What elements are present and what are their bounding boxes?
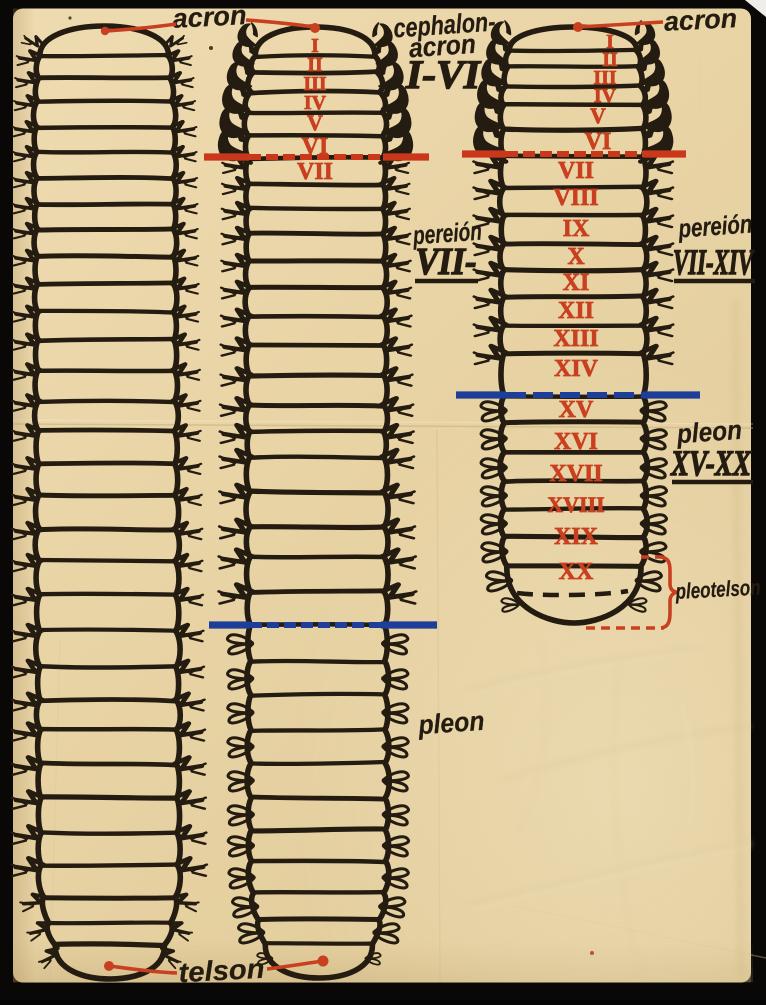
svg-text:VI: VI xyxy=(302,134,329,160)
svg-text:VII: VII xyxy=(297,159,333,185)
svg-text:XII: XII xyxy=(558,298,594,324)
svg-text:VII-XIV: VII-XIV xyxy=(673,242,755,282)
svg-text:XV-XX: XV-XX xyxy=(670,443,751,483)
svg-text:X: X xyxy=(567,244,585,270)
svg-text:V: V xyxy=(307,110,323,135)
svg-text:VIII: VIII xyxy=(553,185,598,211)
svg-text:telson: telson xyxy=(178,953,266,988)
svg-text:acron: acron xyxy=(172,0,247,34)
svg-text:IX: IX xyxy=(563,216,590,242)
svg-text:XIV: XIV xyxy=(554,356,599,382)
svg-text:XI: XI xyxy=(563,270,590,296)
svg-text:I-VI: I-VI xyxy=(405,52,482,97)
svg-text:XX: XX xyxy=(559,559,594,585)
svg-text:VII: VII xyxy=(558,158,594,184)
svg-text:V: V xyxy=(590,103,606,128)
svg-text:XIX: XIX xyxy=(554,524,599,550)
svg-text:pereión: pereión xyxy=(677,208,754,243)
svg-text:VII-: VII- xyxy=(416,241,477,283)
svg-text:XVI: XVI xyxy=(554,429,598,455)
svg-text:XVII: XVII xyxy=(549,461,602,487)
svg-text:acron: acron xyxy=(663,3,737,37)
svg-text:XIII: XIII xyxy=(553,326,598,352)
svg-text:XV: XV xyxy=(559,397,594,423)
svg-text:pleotelson: pleotelson xyxy=(674,575,761,604)
svg-text:XVIII: XVIII xyxy=(547,492,604,517)
svg-text:VI: VI xyxy=(585,129,612,155)
svg-text:pleon: pleon xyxy=(416,706,485,741)
